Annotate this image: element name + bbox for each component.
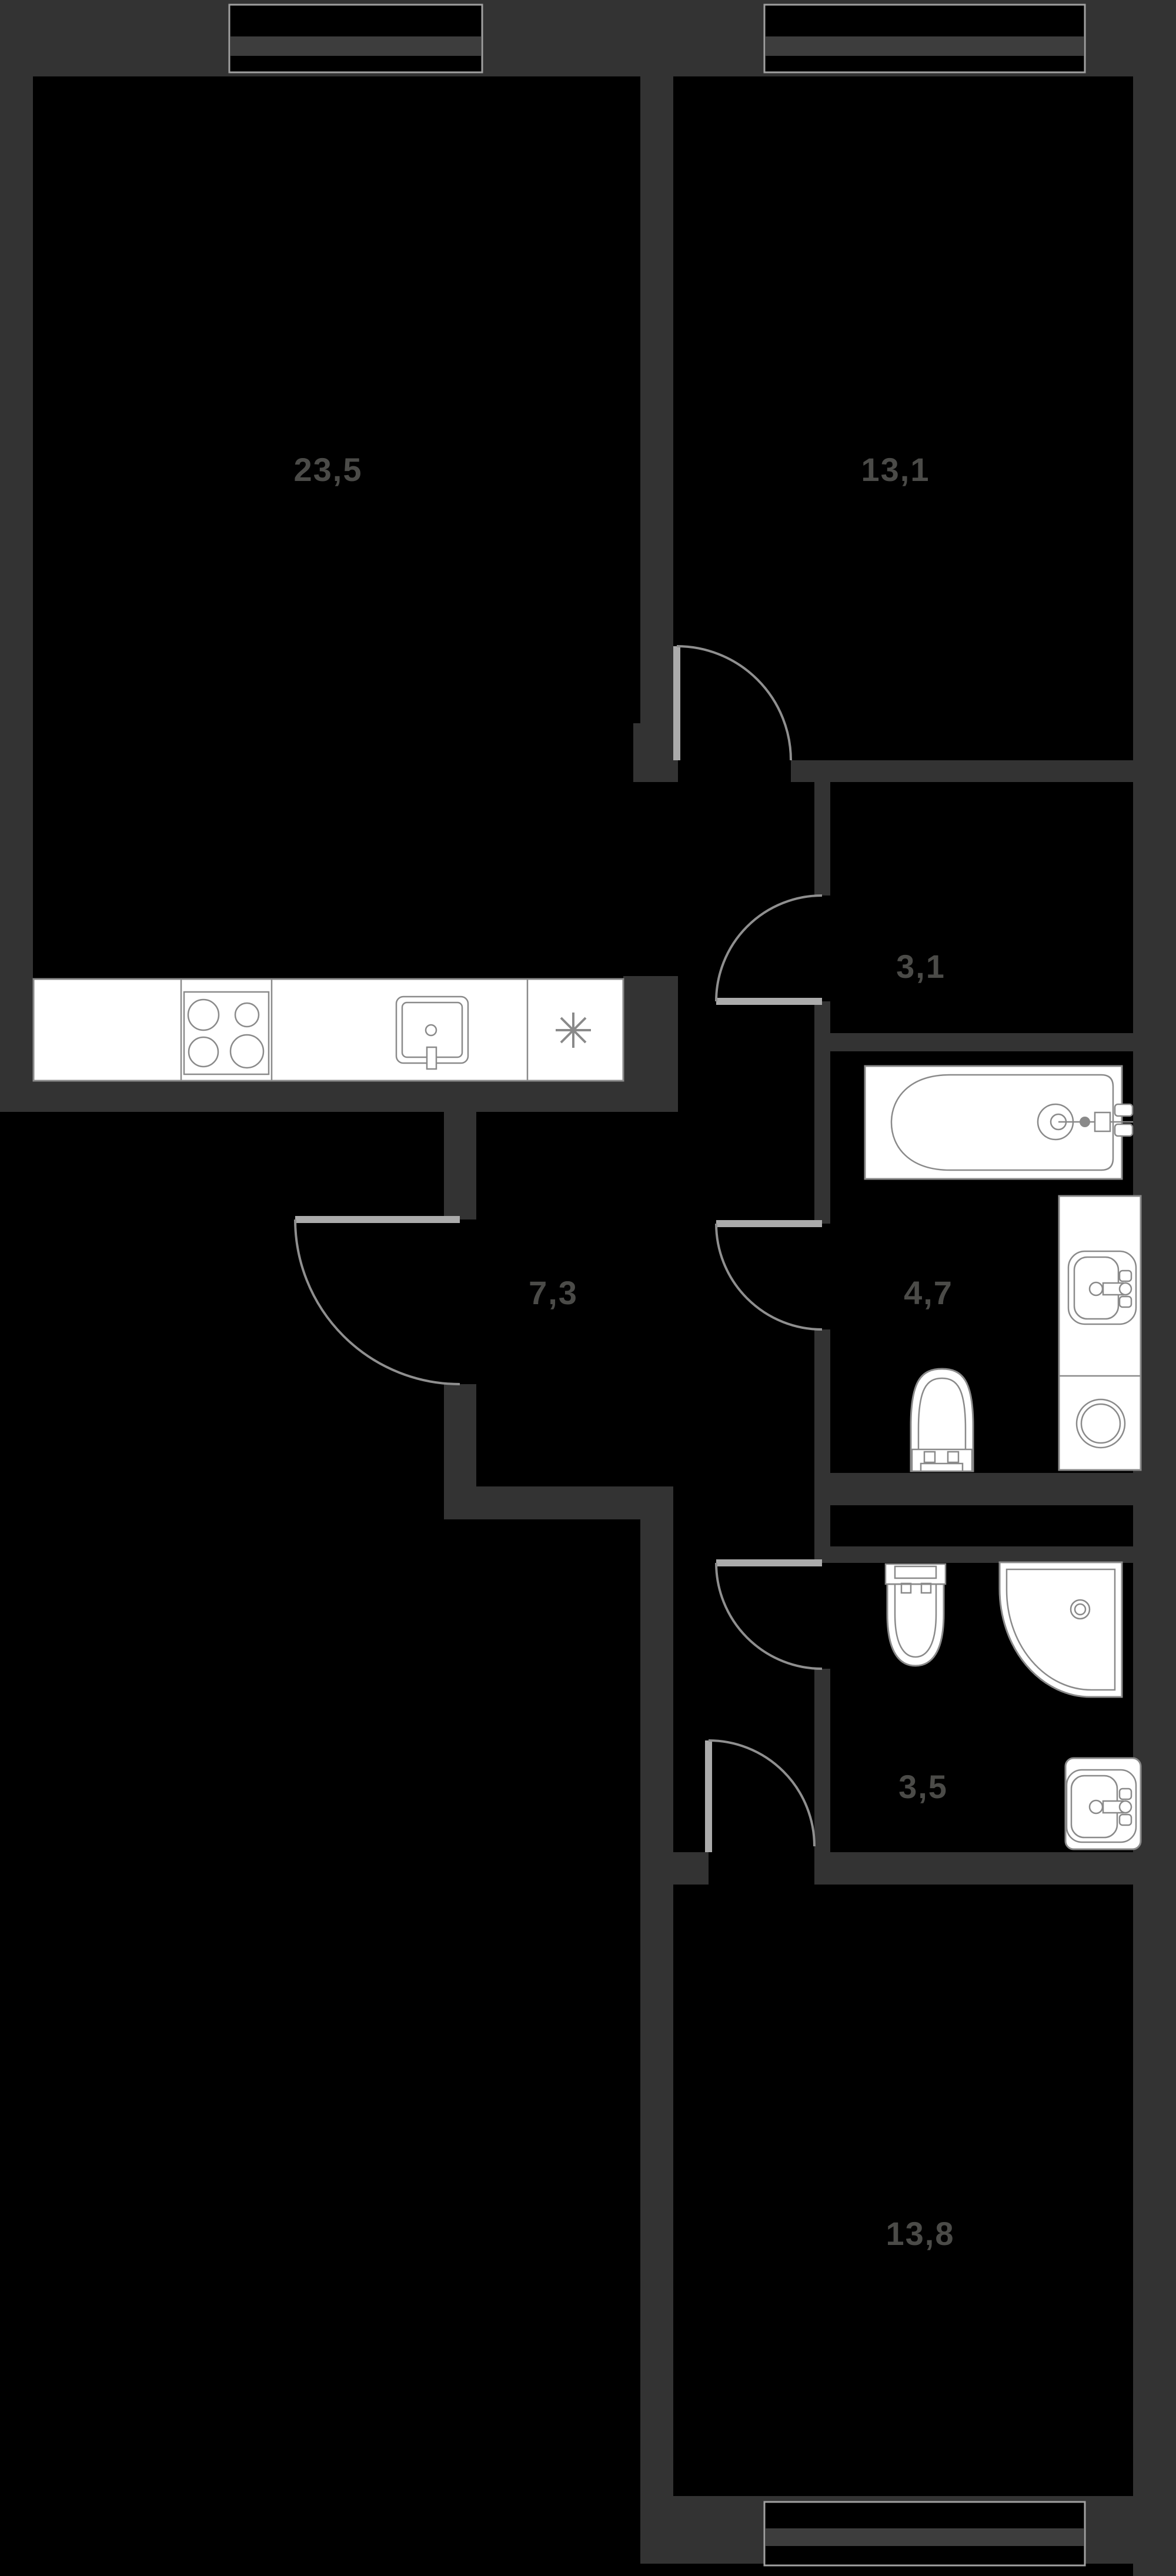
bathtub-faucet-box	[1095, 1112, 1110, 1131]
door-swing-arc	[709, 1740, 814, 1846]
wall-vert-b	[814, 1001, 830, 1224]
wall-living-bottom	[0, 1081, 678, 1112]
room-label-bathroom: 4,7	[904, 1274, 953, 1311]
washbasin-unit	[1059, 1196, 1141, 1470]
wall-wc-top	[830, 1546, 1133, 1563]
door-swing-arc	[716, 1563, 822, 1669]
room-label-wc: 3,5	[898, 1768, 948, 1805]
vanity-counter	[1059, 1196, 1141, 1470]
room-labels: 23,5 13,1 3,1 7,3 4,7 3,5 13,8	[294, 451, 955, 2252]
kitchen-counter	[34, 979, 623, 1081]
room-label-bedroom-lower: 13,8	[886, 2215, 955, 2252]
wall-wc-bottom-left	[673, 1852, 709, 1885]
counter-top	[34, 979, 623, 1081]
room-label-living: 23,5	[294, 451, 363, 488]
kitchen-sink-icon	[396, 997, 468, 1069]
vent-block-top-left	[229, 5, 482, 72]
vent-block-bottom	[764, 2502, 1085, 2565]
wall-stub-kitchen	[623, 976, 678, 1081]
wall-bedroom-lower-top	[814, 1852, 1133, 1885]
wall-bedroom-upper-bottom	[791, 760, 1133, 782]
shower-outline	[1000, 1562, 1122, 1697]
toilet-icon	[911, 1369, 973, 1471]
wall-corridor-left-upper	[444, 1112, 476, 1219]
wall-vert-d	[814, 1669, 830, 1885]
door-leaf	[295, 1216, 460, 1223]
bathtub-faucet-handle	[1115, 1104, 1132, 1116]
shower-tray-icon	[1000, 1562, 1122, 1697]
door-swing-arc	[295, 1219, 460, 1384]
door-wc	[716, 1559, 822, 1669]
washbasin-2-icon	[1065, 1758, 1141, 1849]
wall-pier	[633, 723, 678, 782]
faucet-knob	[1120, 1283, 1131, 1295]
wall-bedroom-lower-left	[640, 1519, 673, 2555]
door-leaf	[716, 998, 822, 1005]
sink-faucet	[427, 1047, 436, 1069]
floor-plan: 23,5 13,1 3,1 7,3 4,7 3,5 13,8	[0, 0, 1176, 2576]
wall-corridor-bottom	[444, 1486, 673, 1519]
wall-hall-bottom	[830, 1033, 1133, 1051]
vent-band	[230, 36, 481, 56]
vent-band	[766, 2528, 1084, 2546]
door-leaf	[705, 1740, 712, 1852]
toilet-tank-strip	[921, 1464, 963, 1471]
door-bedroom-lower	[705, 1740, 814, 1852]
wall-vert-c	[814, 1329, 830, 1563]
door-bedroom-upper	[673, 646, 791, 760]
bathtub-faucet-dot	[1080, 1117, 1090, 1127]
wall-vert-a	[814, 760, 830, 896]
door-swing-arc	[716, 1224, 822, 1329]
room-label-bedroom-upper: 13,1	[861, 451, 930, 488]
wall-left-exterior	[0, 76, 33, 1112]
vent-block-top-right	[764, 5, 1085, 72]
faucet-knob	[1120, 1801, 1131, 1813]
wall-between-living-and-bedroom	[640, 76, 673, 760]
vent-band	[766, 36, 1084, 56]
room-label-hall: 3,1	[896, 948, 946, 985]
door-leaf	[673, 646, 680, 760]
toilet-2-icon	[886, 1564, 946, 1666]
door-entrance	[295, 1216, 460, 1384]
door-leaf	[716, 1220, 822, 1227]
walls	[0, 0, 1176, 2576]
room-label-corridor: 7,3	[529, 1274, 578, 1311]
door-leaf	[716, 1559, 822, 1566]
refrigerator-asterisk-icon	[556, 1013, 591, 1048]
door-bathroom	[716, 1220, 822, 1329]
door-swing-arc	[677, 646, 791, 760]
door-swing-arc	[716, 896, 822, 1001]
stove-outline	[184, 992, 269, 1074]
stove-icon	[184, 992, 269, 1074]
door-hall	[716, 896, 822, 1005]
bathtub-faucet-handle	[1115, 1124, 1132, 1136]
wall-bathroom-bottom	[830, 1473, 1133, 1505]
bathtub	[865, 1066, 1133, 1179]
